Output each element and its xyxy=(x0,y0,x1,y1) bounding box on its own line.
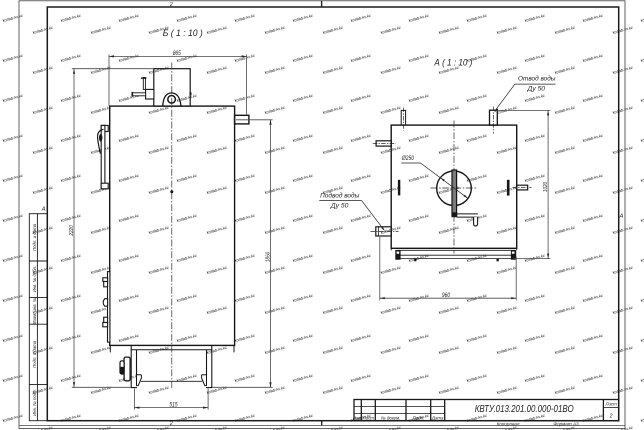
svg-text:1020: 1020 xyxy=(543,181,549,192)
svg-text:2: 2 xyxy=(169,2,173,8)
svg-text:Ду 50: Ду 50 xyxy=(330,202,349,209)
svg-text:А: А xyxy=(41,206,46,212)
svg-text:Взам. инв. №: Взам. инв. № xyxy=(32,297,37,324)
svg-text:Дата: Дата xyxy=(431,415,444,420)
svg-text:2: 2 xyxy=(169,421,173,427)
svg-text:Формат А3: Формат А3 xyxy=(553,421,579,426)
svg-text:№ докум.: № докум. xyxy=(381,415,400,420)
svg-text:Ø250: Ø250 xyxy=(401,155,414,162)
svg-text:2220: 2220 xyxy=(69,224,75,236)
svg-text:Б ( 1 : 10 ): Б ( 1 : 10 ) xyxy=(163,28,203,39)
svg-text:Инв. № дубл.: Инв. № дубл. xyxy=(32,266,37,292)
svg-text:Инв. № подл.: Инв. № подл. xyxy=(32,389,37,416)
svg-text:2: 2 xyxy=(609,413,613,419)
svg-text:КВТУ.013.201.00.000-01ВО: КВТУ.013.201.00.000-01ВО xyxy=(475,403,574,415)
svg-text:Лист: Лист xyxy=(604,402,617,407)
svg-text:А ( 1 : 10 ): А ( 1 : 10 ) xyxy=(434,57,473,68)
svg-text:960: 960 xyxy=(442,293,451,299)
svg-text:А: А xyxy=(619,213,624,219)
svg-text:Изм.: Изм. xyxy=(353,415,362,420)
svg-text:Подп. и дата: Подп. и дата xyxy=(32,340,37,368)
svg-text:Подп.: Подп. xyxy=(413,415,425,420)
svg-text:Отвод воды: Отвод воды xyxy=(518,75,556,82)
svg-text:865: 865 xyxy=(173,51,182,57)
svg-text:1860: 1860 xyxy=(266,251,272,262)
svg-text:Подвод воды: Подвод воды xyxy=(320,192,360,199)
svg-text:Лист: Лист xyxy=(362,415,375,420)
svg-text:Копировал: Копировал xyxy=(497,421,520,426)
svg-text:Ду 50: Ду 50 xyxy=(526,86,545,93)
svg-text:515: 515 xyxy=(169,402,178,408)
svg-text:Подп. и дата: Подп. и дата xyxy=(32,223,37,251)
